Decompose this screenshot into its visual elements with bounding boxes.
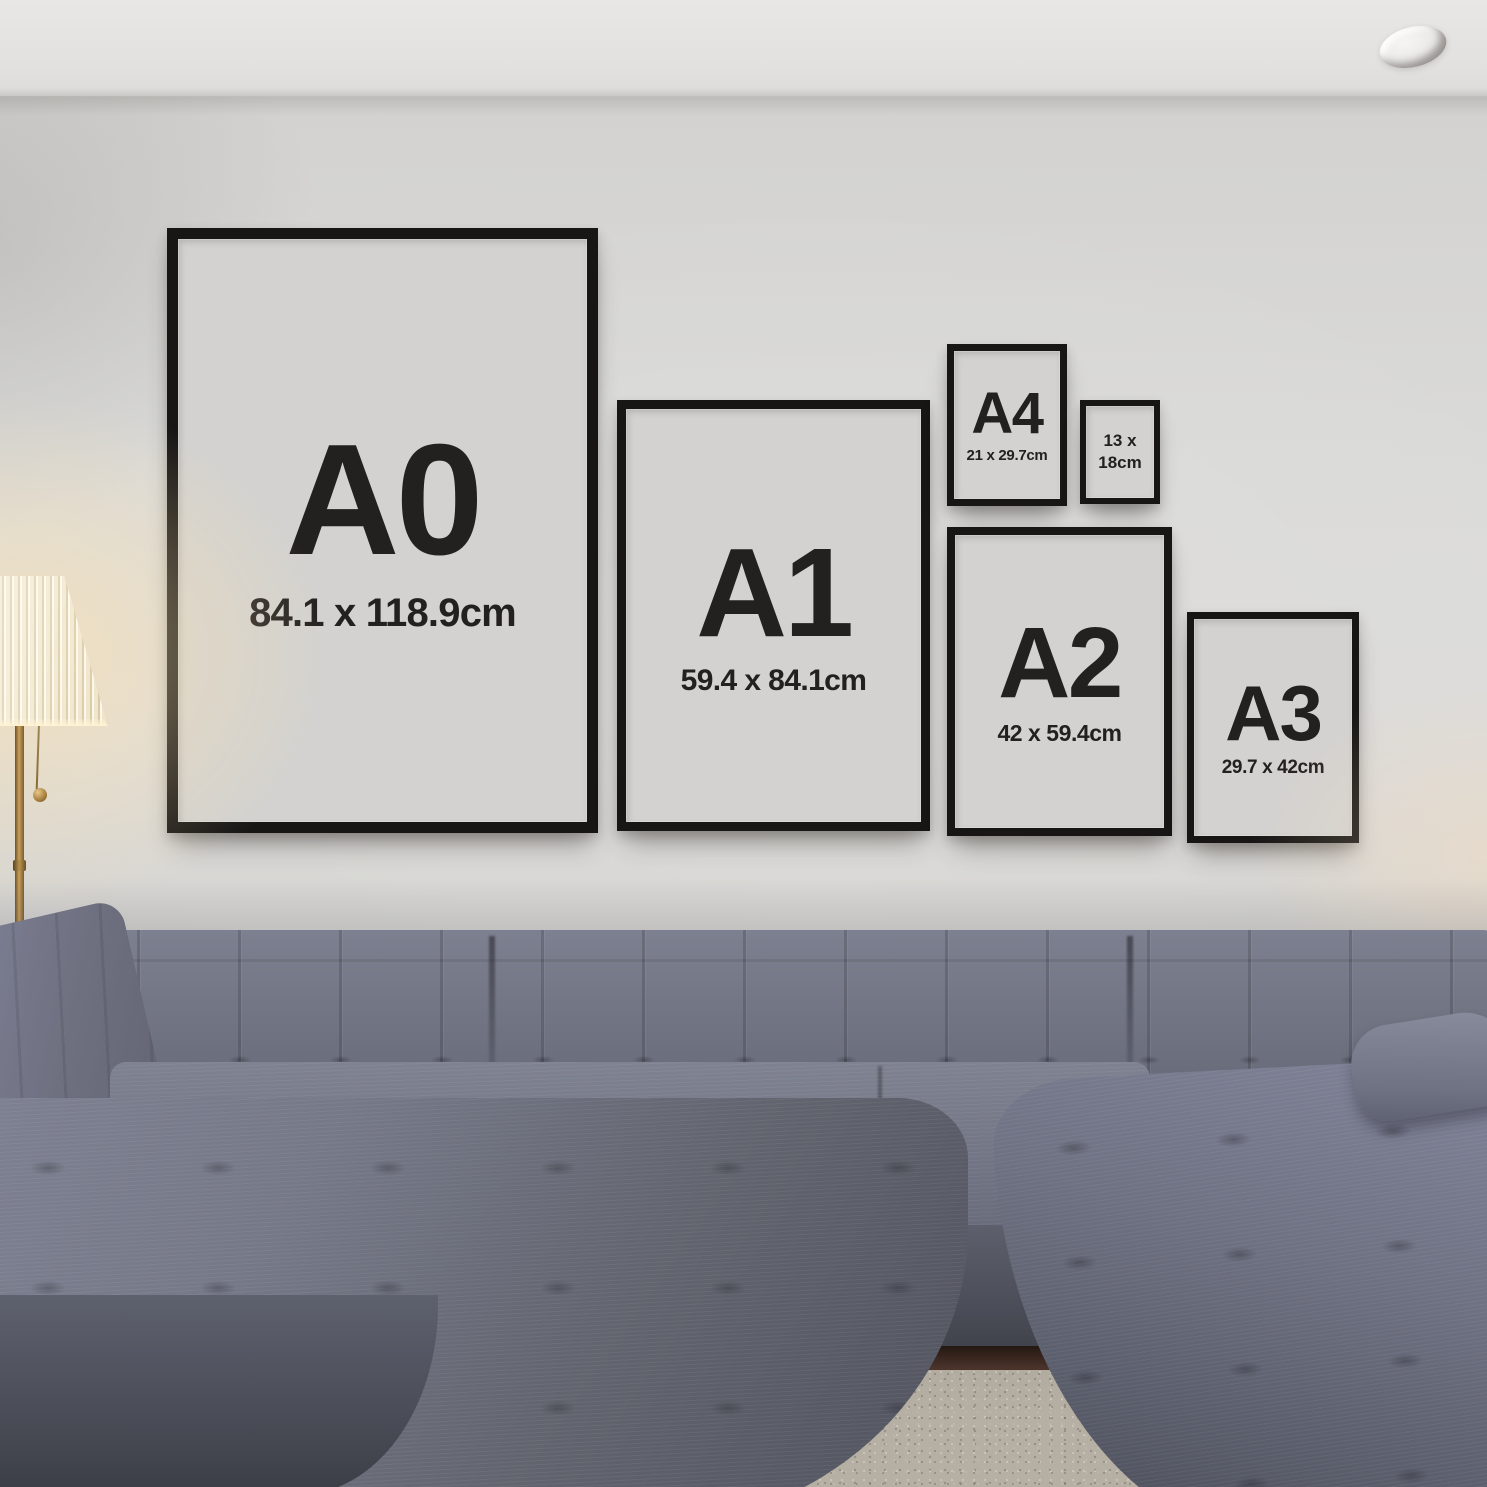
size-label-a1: A1: [696, 533, 851, 653]
poster-frame-a1: A1 59.4 x 84.1cm: [617, 400, 930, 831]
size-dimensions-a1: 59.4 x 84.1cm: [681, 664, 867, 698]
ceiling: [0, 0, 1487, 96]
size-dimensions-a0: 84.1 x 118.9cm: [249, 591, 516, 636]
sofa-left-chaise-front: [0, 1295, 438, 1487]
size-label-a4: A4: [971, 386, 1042, 441]
poster-frame-a2: A2 42 x 59.4cm: [947, 527, 1172, 836]
lamp-pole-joint: [13, 860, 26, 871]
size-label-a3: A3: [1225, 676, 1321, 750]
size-label-a0: A0: [285, 425, 479, 575]
living-room-scene: A0 84.1 x 118.9cm A1 59.4 x 84.1cm A4 21…: [0, 0, 1487, 1487]
size-label-a2: A2: [998, 616, 1121, 711]
poster-frame-13x18: 13 x 18cm: [1080, 400, 1160, 504]
poster-frame-a3: A3 29.7 x 42cm: [1187, 612, 1359, 843]
lamp-pull-chain-ball: [33, 788, 47, 802]
size-dimensions-a3: 29.7 x 42cm: [1222, 757, 1325, 779]
ceiling-wall-shadow: [0, 88, 1487, 116]
size-dimensions-a2: 42 x 59.4cm: [997, 720, 1121, 747]
poster-frame-a0: A0 84.1 x 118.9cm: [167, 228, 598, 833]
poster-frame-a4: A4 21 x 29.7cm: [947, 344, 1067, 506]
size-dimensions-a4: 21 x 29.7cm: [967, 447, 1048, 464]
size-label-13x18: 13 x: [1103, 430, 1136, 452]
size-dimensions-13x18: 18cm: [1098, 452, 1141, 474]
